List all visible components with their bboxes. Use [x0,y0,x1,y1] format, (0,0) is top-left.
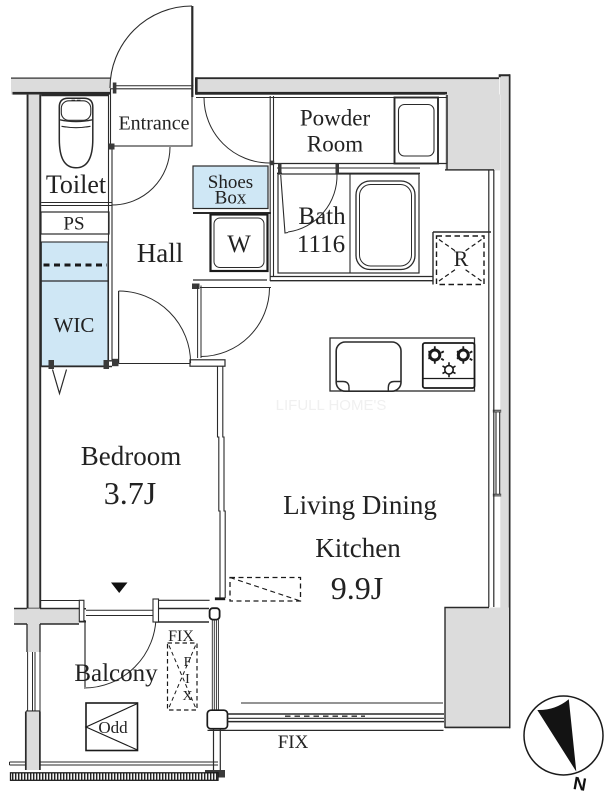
svg-text:FIX: FIX [168,628,194,645]
svg-text:Toilet: Toilet [46,170,107,199]
svg-text:WIC: WIC [54,313,95,337]
svg-text:Bedroom: Bedroom [81,441,182,471]
svg-text:Bath: Bath [298,203,346,230]
svg-text:FIX: FIX [278,732,309,753]
svg-text:I: I [185,672,190,687]
svg-text:3.7J: 3.7J [104,475,156,511]
svg-text:Odd: Odd [98,718,128,737]
svg-text:W: W [227,231,251,258]
svg-text:Room: Room [307,132,363,157]
svg-text:Box: Box [215,188,247,209]
svg-text:F: F [184,655,192,670]
svg-text:9.9J: 9.9J [331,570,383,606]
svg-text:Powder: Powder [300,106,371,131]
svg-text:1116: 1116 [297,231,345,258]
svg-text:Kitchen: Kitchen [315,533,401,563]
svg-text:R: R [454,246,469,271]
svg-text:X: X [182,689,192,704]
svg-text:Balcony: Balcony [74,660,158,687]
svg-text:Living Dining: Living Dining [283,490,437,520]
svg-text:Entrance: Entrance [118,113,189,135]
svg-text:LIFULL HOME'S: LIFULL HOME'S [276,397,387,414]
svg-text:PS: PS [63,214,84,235]
svg-text:Hall: Hall [137,238,184,268]
